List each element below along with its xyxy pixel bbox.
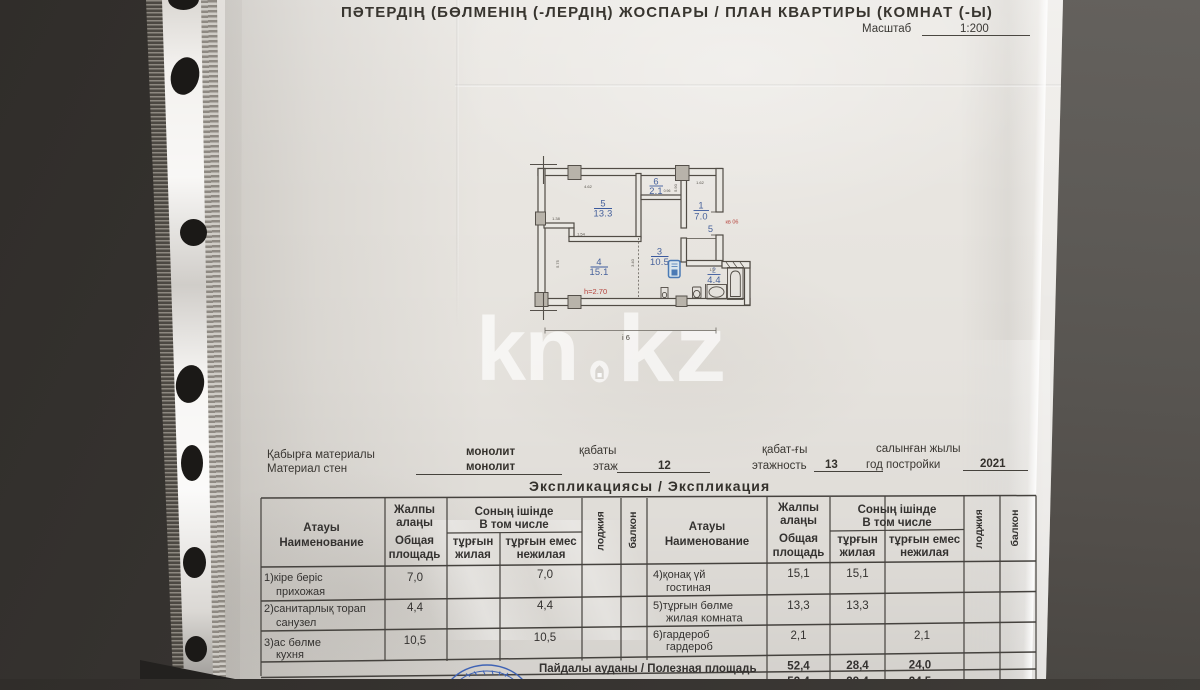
svg-text:Жалпы: Жалпы: [393, 504, 435, 516]
svg-text:2)санитарлық торап: 2)санитарлық торап: [264, 603, 366, 615]
svg-text:5.90: 5.90: [673, 183, 678, 192]
svg-text:15,1: 15,1: [787, 568, 809, 580]
svg-text:4,4: 4,4: [407, 602, 424, 614]
svg-text:кухня: кухня: [276, 649, 304, 661]
svg-text:Соның ішінде: Соның ішінде: [475, 506, 554, 518]
svg-text:0.96: 0.96: [664, 189, 671, 193]
svg-text:1.38: 1.38: [552, 216, 561, 221]
svg-text:1.62: 1.62: [696, 180, 705, 185]
svg-text:балкон: балкон: [627, 512, 639, 549]
svg-text:13,3: 13,3: [846, 600, 868, 612]
svg-text:52,4: 52,4: [787, 661, 810, 673]
svg-text:2,1: 2,1: [914, 630, 930, 642]
svg-text:прихожая: прихожая: [276, 586, 325, 598]
svg-text:1: 1: [698, 201, 703, 211]
svg-text:5: 5: [708, 224, 713, 234]
svg-text:тұрғын емес: тұрғын емес: [505, 536, 577, 548]
svg-text:6)гардероб: 6)гардероб: [653, 629, 710, 641]
svg-text:7,0: 7,0: [537, 569, 553, 581]
svg-text:5: 5: [600, 199, 605, 209]
svg-text:нежилая: нежилая: [517, 549, 566, 561]
svg-text:2,1: 2,1: [791, 630, 807, 642]
svg-text:10.5: 10.5: [650, 257, 669, 267]
svg-text:13.3: 13.3: [594, 209, 613, 219]
svg-text:алаңы: алаңы: [396, 517, 433, 529]
svg-text:В том числе: В том числе: [479, 519, 548, 531]
svg-text:лоджия: лоджия: [595, 511, 607, 551]
svg-text:В том числе: В том числе: [862, 517, 931, 529]
svg-text:2.1: 2.1: [649, 186, 663, 196]
svg-text:5.75: 5.75: [555, 259, 560, 268]
svg-text:балкон: балкон: [1009, 510, 1021, 547]
svg-text:Общая: Общая: [779, 533, 818, 545]
svg-text:10,5: 10,5: [534, 632, 556, 644]
svg-text:4,4: 4,4: [537, 600, 554, 612]
svg-text:3.40: 3.40: [630, 258, 635, 267]
svg-text:Наименование: Наименование: [279, 537, 363, 549]
svg-text:28,4: 28,4: [846, 660, 869, 672]
svg-text:тұрғын: тұрғын: [837, 534, 878, 546]
svg-text:лоджия: лоджия: [973, 509, 985, 549]
svg-text:7.0: 7.0: [694, 212, 708, 222]
svg-text:тұрғын емес: тұрғын емес: [889, 534, 961, 546]
svg-text:10,5: 10,5: [404, 635, 426, 647]
svg-text:1)кіре беріс: 1)кіре беріс: [264, 572, 323, 584]
svg-text:4: 4: [596, 257, 601, 267]
svg-text:Общая: Общая: [395, 535, 434, 547]
svg-text:3)ас бөлме: 3)ас бөлме: [264, 637, 321, 649]
svg-text:площадь: площадь: [389, 549, 441, 561]
svg-text:13,3: 13,3: [787, 600, 809, 612]
svg-text:15.1: 15.1: [590, 267, 609, 277]
svg-text:жилая: жилая: [454, 549, 491, 561]
svg-text:Жалпы: Жалпы: [777, 502, 819, 514]
svg-text:жилая комната: жилая комната: [666, 613, 744, 625]
svg-text:жилая: жилая: [839, 547, 876, 559]
svg-text:Атауы: Атауы: [303, 522, 340, 534]
svg-text:нежилая: нежилая: [900, 547, 949, 559]
svg-text:1.6: 1.6: [710, 268, 715, 272]
svg-text:4.4: 4.4: [707, 275, 721, 285]
svg-text:Пайдалы ауданы / Полезная площ: Пайдалы ауданы / Полезная площадь: [539, 663, 757, 675]
svg-text:7,0: 7,0: [407, 572, 423, 584]
svg-text:гардероб: гардероб: [666, 641, 713, 653]
svg-text:h=2.70: h=2.70: [584, 287, 607, 296]
svg-text:24,0: 24,0: [909, 660, 931, 672]
svg-text:гостиная: гостиная: [666, 582, 711, 594]
svg-text:Наименование: Наименование: [665, 536, 749, 548]
svg-text:1.54: 1.54: [577, 232, 586, 237]
svg-text:алаңы: алаңы: [780, 515, 817, 527]
svg-text:кв 06: кв 06: [726, 220, 739, 226]
svg-text:санузел: санузел: [276, 617, 316, 629]
svg-text:4.62: 4.62: [584, 184, 593, 189]
svg-text:Атауы: Атауы: [689, 521, 726, 533]
svg-text:тұрғын: тұрғын: [453, 536, 494, 548]
svg-text:6: 6: [653, 177, 658, 187]
svg-text:15,1: 15,1: [846, 568, 868, 580]
svg-text:3: 3: [657, 247, 662, 257]
svg-text:4)қонақ үй: 4)қонақ үй: [653, 569, 705, 581]
svg-text:площадь: площадь: [773, 547, 825, 559]
svg-text:Соның ішінде: Соның ішінде: [858, 504, 937, 516]
svg-text:5)тұрғын бөлме: 5)тұрғын бөлме: [653, 600, 733, 612]
svg-text:і 6: і 6: [622, 333, 630, 342]
